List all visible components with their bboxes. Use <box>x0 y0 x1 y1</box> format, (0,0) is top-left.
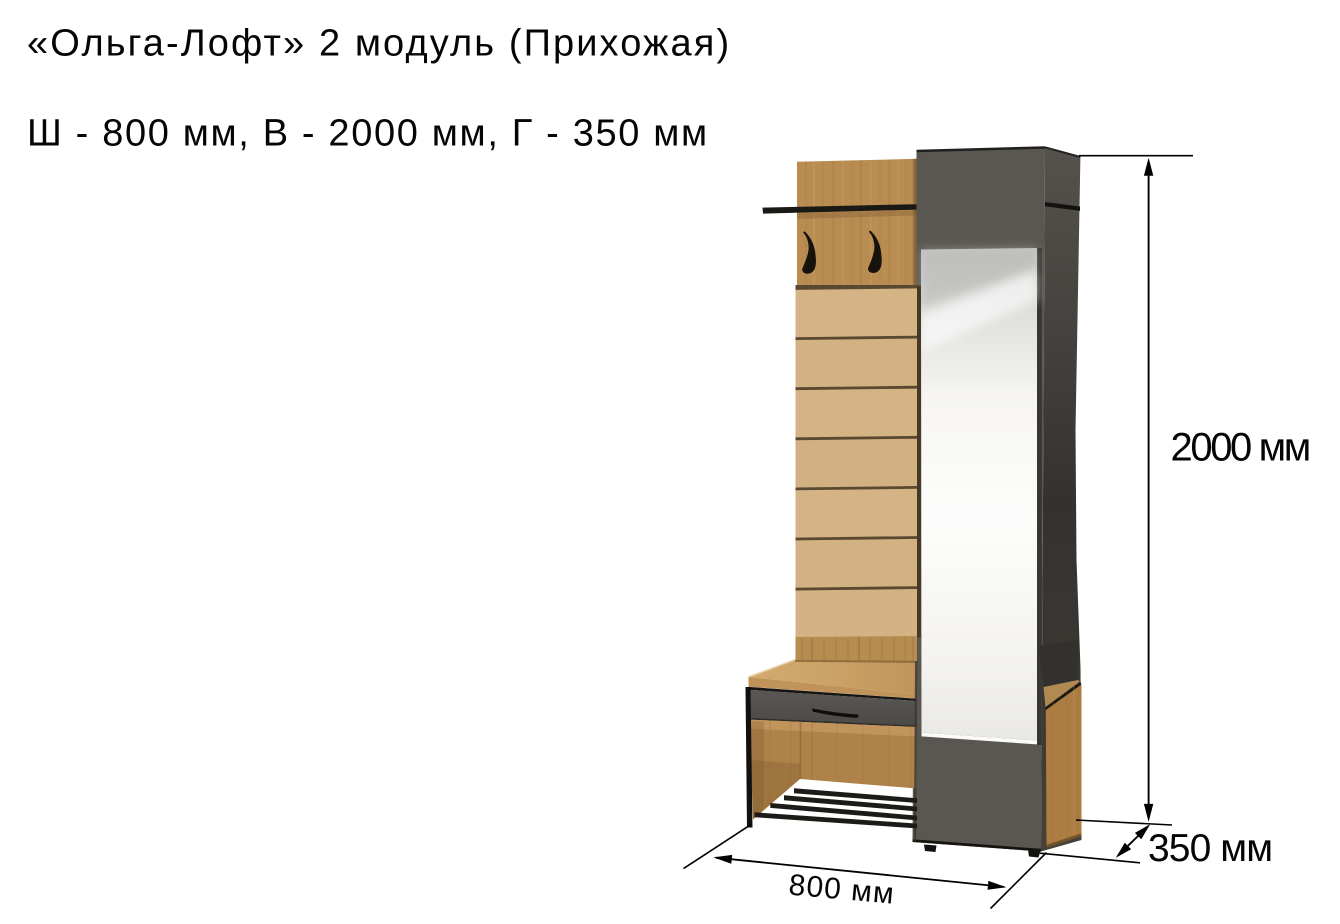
svg-text:«Ольга-Лофт» 2 модуль (Прихожа: «Ольга-Лофт» 2 модуль (Прихожая) <box>27 23 731 65</box>
svg-text:Ш - 800 мм, В - 2000 мм, Г - 3: Ш - 800 мм, В - 2000 мм, Г - 350 мм <box>27 113 709 155</box>
svg-text:350 мм: 350 мм <box>1148 827 1272 870</box>
svg-text:2000 мм: 2000 мм <box>1171 426 1309 470</box>
